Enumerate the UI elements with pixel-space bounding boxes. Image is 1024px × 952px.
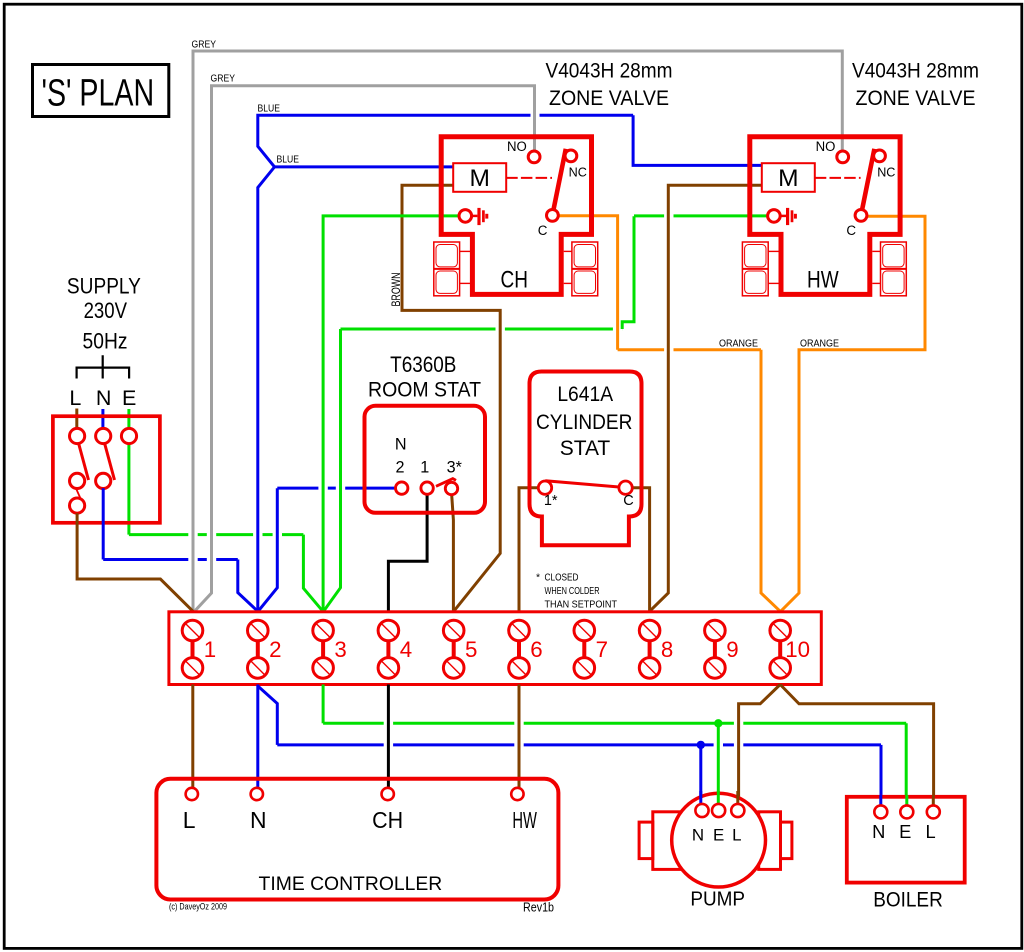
svg-text:8: 8: [661, 637, 673, 662]
svg-text:NO: NO: [816, 139, 836, 154]
svg-text:ROOM STAT: ROOM STAT: [368, 378, 481, 402]
svg-text:L: L: [926, 821, 936, 842]
svg-text:'S' PLAN: 'S' PLAN: [42, 73, 155, 115]
svg-text:HW: HW: [807, 267, 839, 294]
svg-text:2: 2: [395, 459, 404, 477]
svg-text:6: 6: [530, 637, 542, 662]
svg-text:V4043H 28mm: V4043H 28mm: [546, 60, 673, 83]
svg-text:C: C: [623, 493, 633, 509]
svg-text:CH: CH: [372, 807, 403, 833]
svg-text:SUPPLY: SUPPLY: [67, 273, 141, 298]
svg-text:L641A: L641A: [557, 382, 613, 406]
svg-text:230V: 230V: [84, 298, 127, 323]
svg-text:BOILER: BOILER: [873, 889, 943, 912]
svg-text:9: 9: [726, 637, 738, 662]
svg-text:THAN SETPOINT: THAN SETPOINT: [545, 599, 618, 611]
svg-text:CYLINDER: CYLINDER: [536, 410, 632, 434]
svg-text:L: L: [732, 825, 741, 844]
svg-text:BLUE: BLUE: [258, 103, 281, 115]
svg-text:5: 5: [465, 637, 477, 662]
svg-text:NC: NC: [877, 166, 895, 180]
svg-text:M: M: [469, 165, 489, 192]
svg-text:10: 10: [785, 637, 810, 662]
svg-text:Rev1b: Rev1b: [523, 900, 554, 915]
svg-text:PUMP: PUMP: [690, 889, 745, 911]
svg-text:4: 4: [400, 637, 412, 662]
svg-text:BROWN: BROWN: [391, 273, 403, 307]
svg-text:ORANGE: ORANGE: [800, 338, 839, 350]
svg-text:2: 2: [269, 637, 281, 662]
svg-text:NO: NO: [507, 139, 527, 154]
svg-text:V4043H 28mm: V4043H 28mm: [852, 60, 979, 83]
svg-text:CH: CH: [501, 267, 528, 294]
svg-text:N: N: [872, 821, 885, 842]
svg-text:*: *: [536, 572, 540, 584]
svg-text:N: N: [692, 825, 704, 844]
svg-text:1: 1: [420, 459, 429, 477]
svg-text:M: M: [778, 165, 798, 192]
svg-text:ZONE VALVE: ZONE VALVE: [856, 87, 976, 110]
svg-text:TIME CONTROLLER: TIME CONTROLLER: [259, 874, 443, 895]
svg-text:ZONE VALVE: ZONE VALVE: [549, 87, 669, 110]
svg-text:STAT: STAT: [560, 436, 611, 460]
svg-text:50Hz: 50Hz: [83, 329, 128, 354]
svg-text:WHEN COLDER: WHEN COLDER: [545, 585, 600, 597]
svg-text:E: E: [899, 821, 911, 842]
svg-text:C: C: [538, 223, 548, 238]
svg-text:7: 7: [596, 637, 608, 662]
svg-text:ORANGE: ORANGE: [719, 338, 758, 350]
svg-text:1: 1: [204, 637, 216, 662]
svg-text:L: L: [69, 386, 81, 410]
svg-text:1*: 1*: [544, 493, 558, 509]
svg-text:CLOSED: CLOSED: [545, 572, 579, 584]
svg-text:BLUE: BLUE: [277, 154, 300, 166]
svg-text:L: L: [183, 807, 196, 833]
svg-text:E: E: [713, 825, 724, 844]
svg-text:N: N: [250, 807, 267, 833]
svg-text:N: N: [395, 436, 407, 454]
svg-text:T6360B: T6360B: [390, 352, 456, 377]
svg-text:(c) DaveyOz 2009: (c) DaveyOz 2009: [169, 902, 227, 913]
svg-text:GREY: GREY: [211, 73, 236, 85]
svg-text:E: E: [122, 386, 136, 410]
svg-text:HW: HW: [512, 807, 537, 833]
svg-text:3*: 3*: [447, 459, 463, 477]
svg-text:C: C: [846, 223, 856, 238]
svg-text:GREY: GREY: [192, 39, 217, 51]
svg-text:NC: NC: [569, 166, 587, 180]
svg-text:3: 3: [334, 637, 346, 662]
svg-text:N: N: [96, 386, 112, 410]
